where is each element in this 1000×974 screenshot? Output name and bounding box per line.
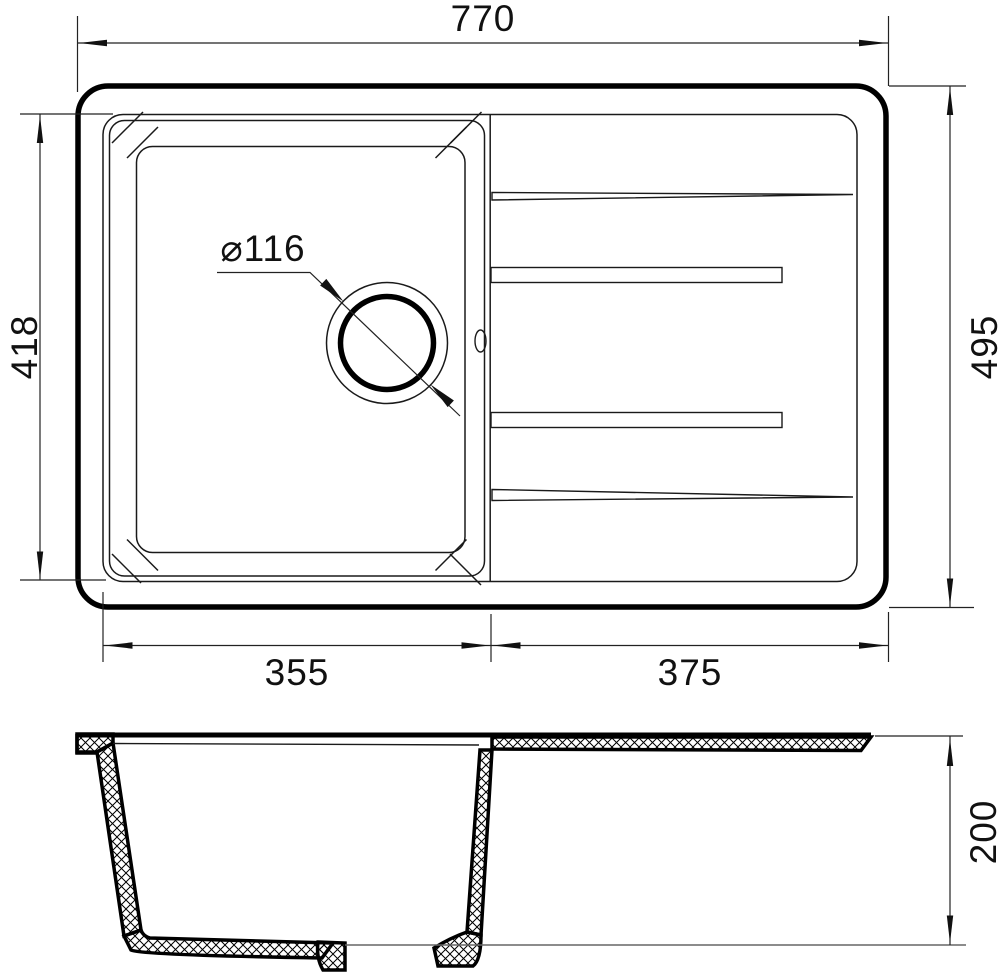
dim-overall-width: 770 <box>451 0 516 39</box>
rim-back-edge <box>113 744 479 746</box>
section-walls <box>77 734 871 970</box>
dim-drain-diameter: ⌀116 <box>220 228 305 269</box>
sink-technical-drawing: 770 418 495 355 375 ⌀116 200 <box>0 0 1000 974</box>
dim-bowl-width: 355 <box>265 652 330 693</box>
dim-drainboard-width: 375 <box>658 652 723 693</box>
plan-view <box>78 86 886 607</box>
section-view <box>77 734 966 970</box>
dim-section-height: 200 <box>963 800 1000 865</box>
sink-outline <box>78 86 886 607</box>
dim-bowl-depth: 418 <box>4 315 45 380</box>
drawing-sheet: { "drawing": { "colors": { "line": "#000… <box>0 0 1000 974</box>
dim-overall-depth: 495 <box>964 315 1000 380</box>
